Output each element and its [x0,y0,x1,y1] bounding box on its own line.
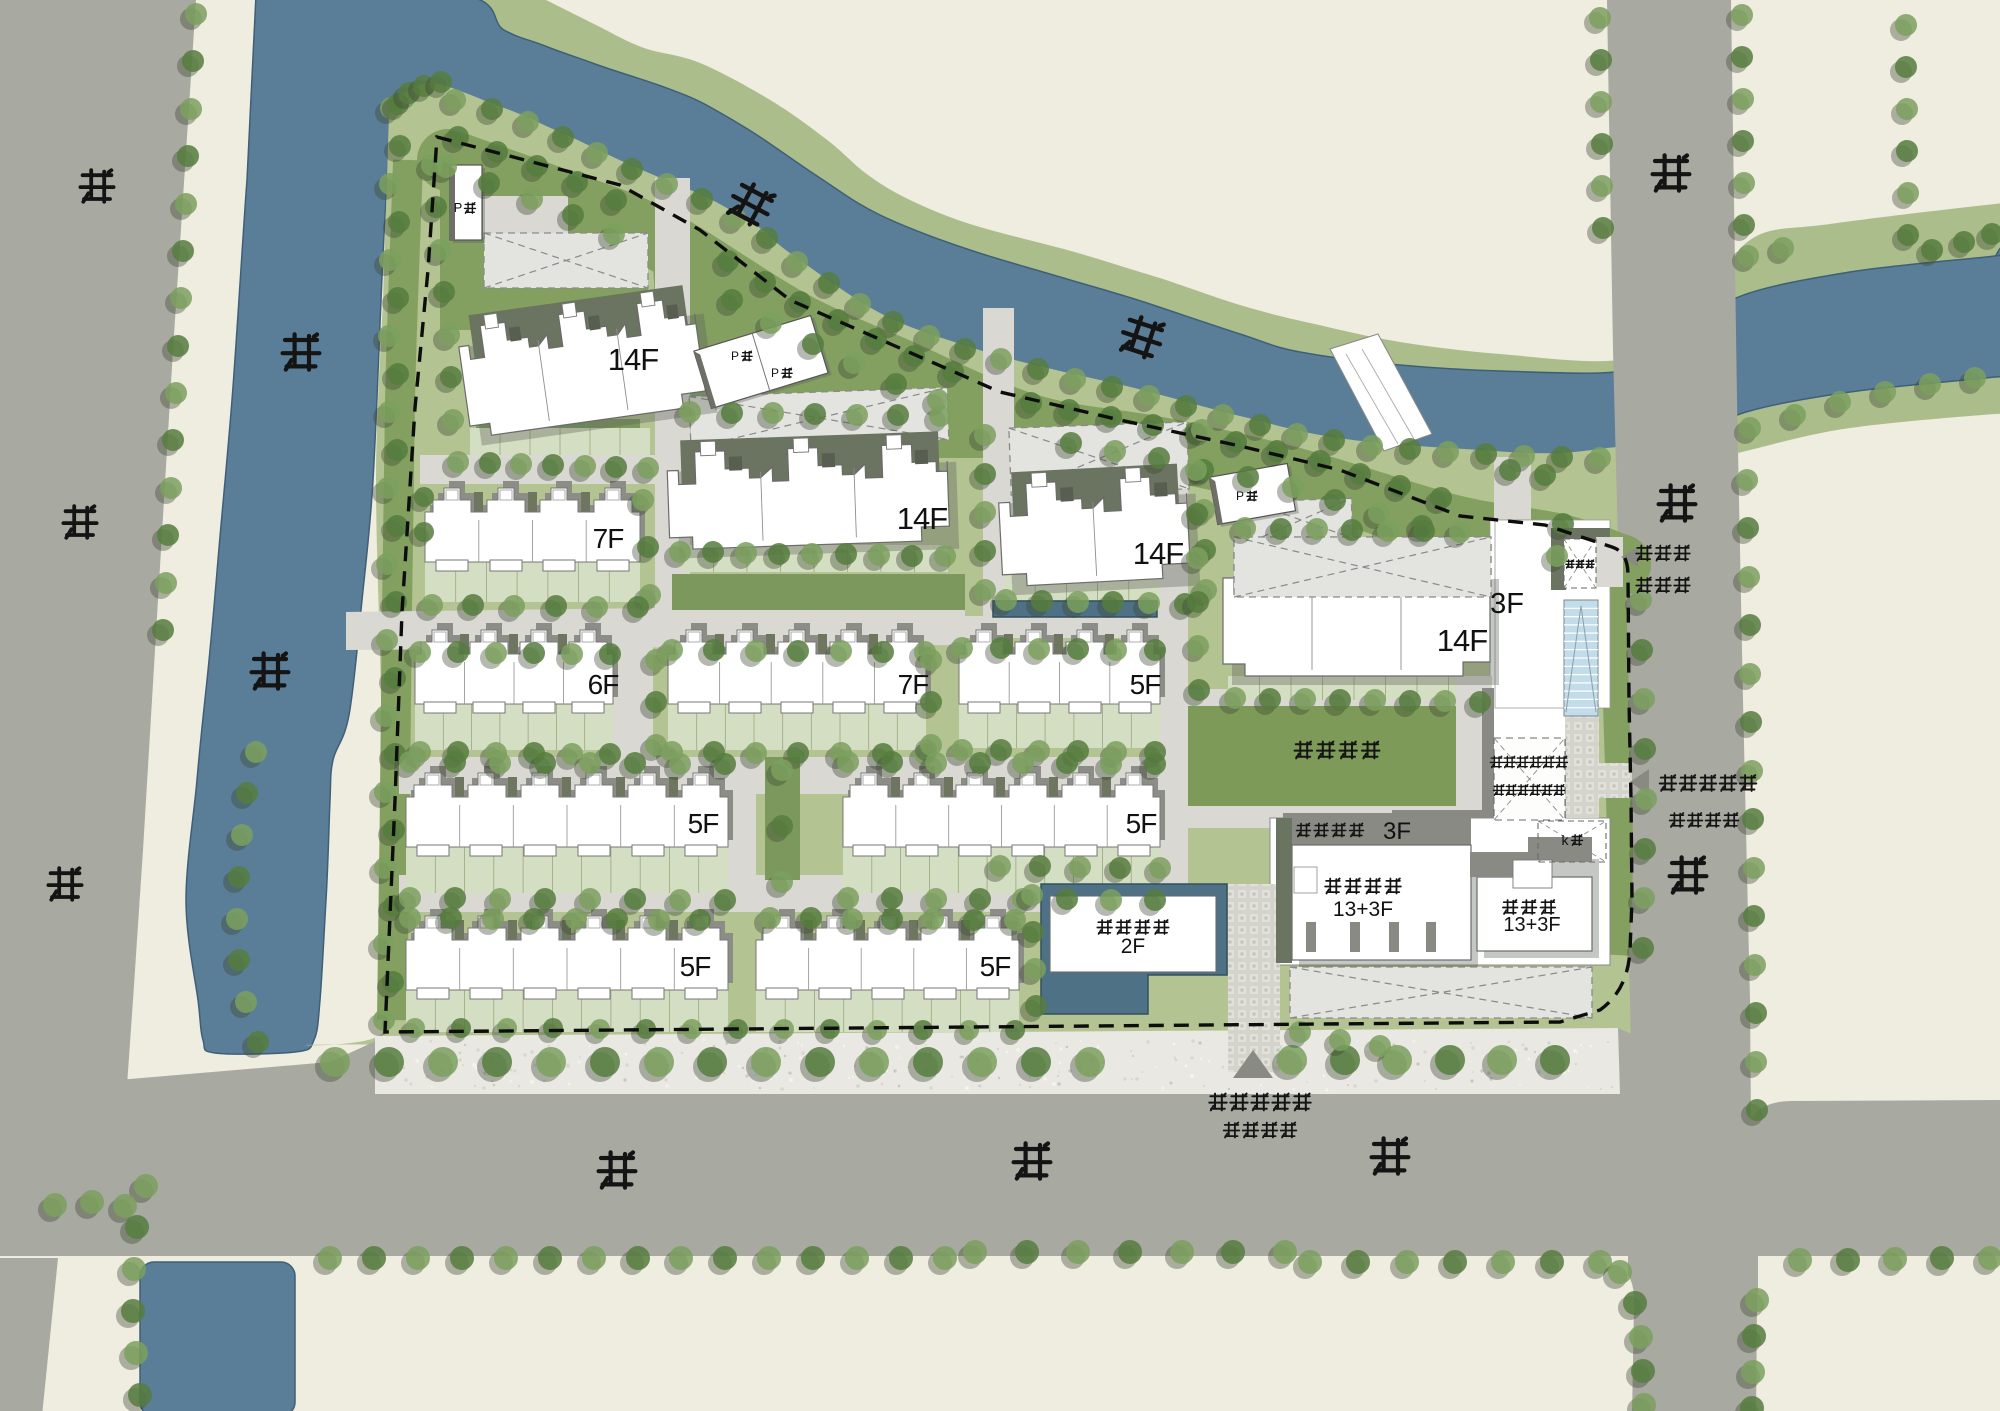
svg-text:5F: 5F [680,951,711,982]
svg-text:2F: 2F [1121,935,1146,958]
svg-text:5F: 5F [688,808,719,839]
svg-text:6F: 6F [588,669,619,700]
svg-text:14F: 14F [608,342,658,377]
svg-text:P: P [454,200,463,215]
svg-text:14F: 14F [1133,536,1183,571]
svg-text:P: P [771,366,779,380]
svg-text:7F: 7F [593,523,624,554]
svg-text:5F: 5F [1126,808,1157,839]
svg-text:13+3F: 13+3F [1333,898,1393,921]
svg-text:14F: 14F [897,501,947,536]
svg-text:3F: 3F [1490,588,1524,620]
svg-text:3F: 3F [1383,818,1411,845]
svg-text:k: k [1562,832,1570,848]
svg-text:14F: 14F [1437,623,1487,658]
svg-text:P: P [731,349,739,363]
svg-text:13+3F: 13+3F [1503,914,1560,936]
svg-text:5F: 5F [1130,669,1161,700]
svg-text:5F: 5F [980,951,1011,982]
